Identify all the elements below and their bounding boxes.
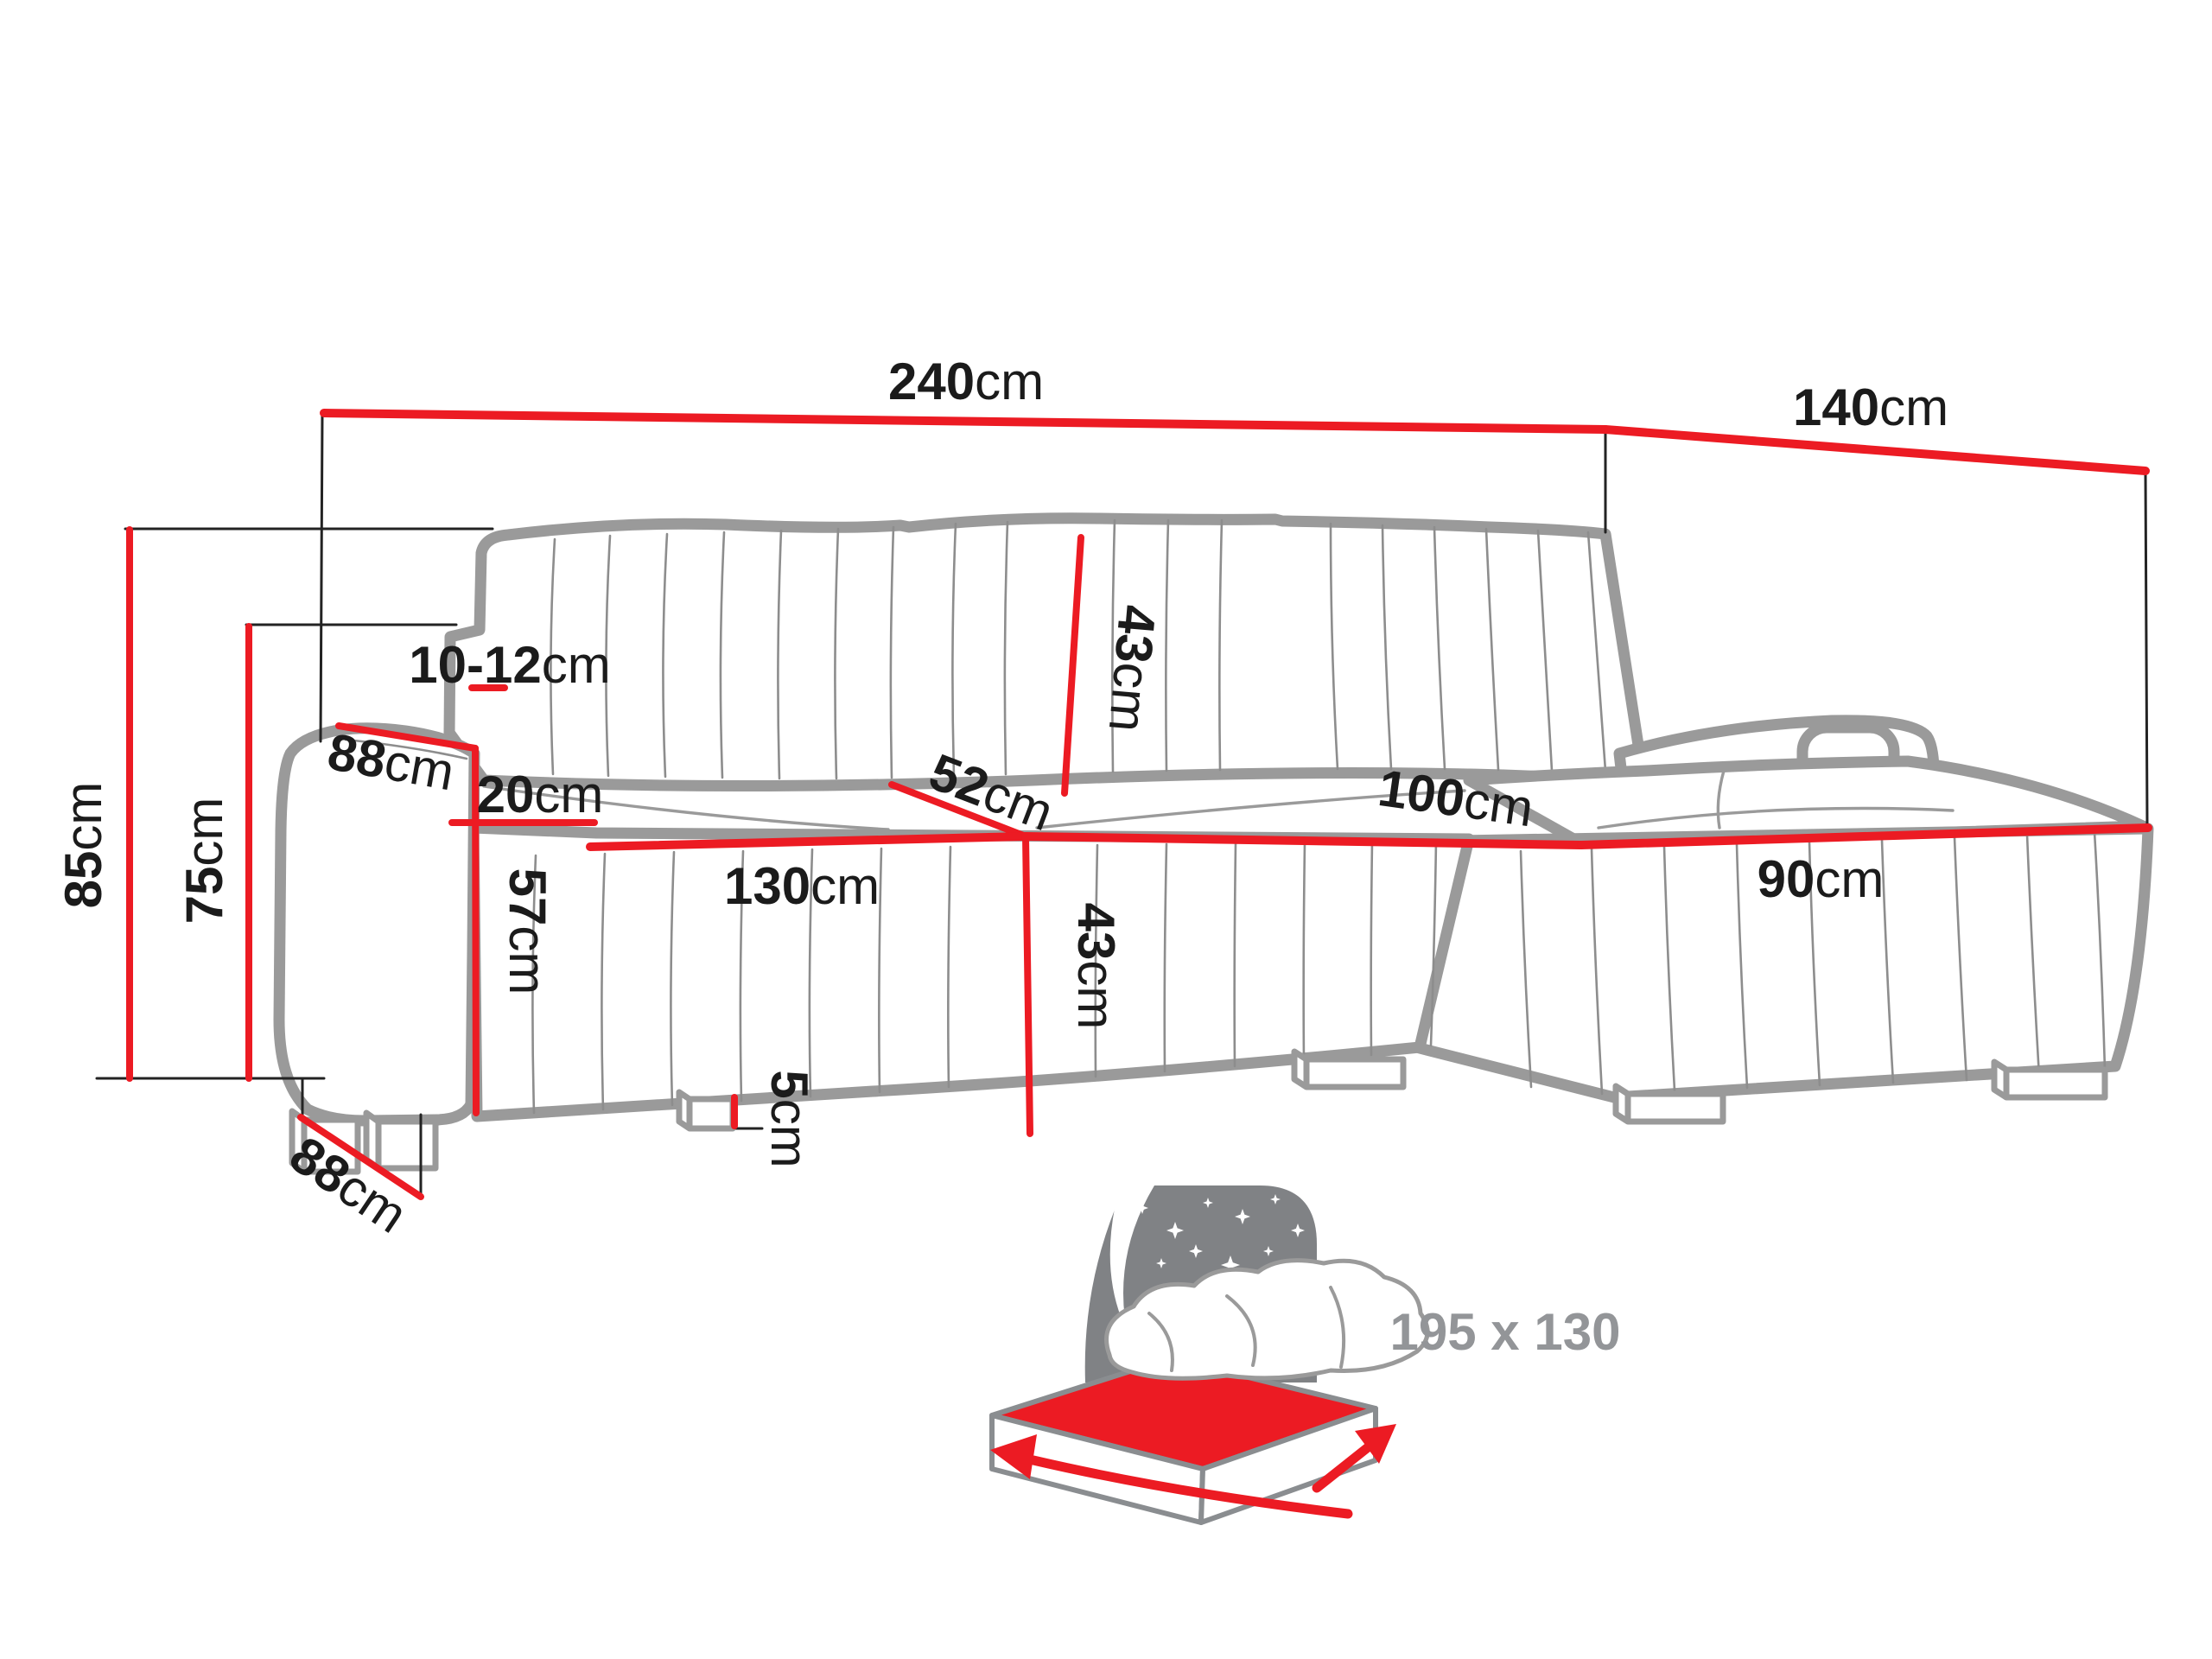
diagram-canvas: 240cm 140cm 85cm 75cm 10-12cm 88cm 20cm … — [0, 0, 2212, 1659]
sofa-dimension-diagram: 240cm 140cm 85cm 75cm 10-12cm 88cm 20cm … — [0, 0, 2212, 1659]
dim-label-return-depth: 140cm — [1793, 378, 1948, 436]
fold-out-mattress — [990, 1358, 1396, 1522]
dim-label-headrest-adjustment: 10-12cm — [409, 636, 610, 694]
dim-line-seat-height-43 — [1026, 836, 1030, 1134]
dim-label-seat-length: 130cm — [724, 857, 880, 915]
sleeping-area-size-label: 195 x 130 — [1390, 1303, 1621, 1361]
dim-line-overall-width-240 — [324, 413, 1605, 429]
sofa-illustration — [279, 518, 2148, 1172]
sofa-backrest — [449, 518, 1642, 786]
dim-label-chaise-width: 90cm — [1758, 850, 1885, 908]
dim-label-seat-height: 43cm — [1067, 903, 1125, 1030]
dim-label-armrest-width: 20cm — [477, 766, 604, 823]
dim-label-overall-height: 85cm — [54, 782, 112, 909]
dim-label-backrest-cushion: 43cm — [1098, 603, 1167, 734]
sleep-function-icon: 195 x 130 — [990, 1185, 1620, 1522]
dim-label-leg-height: 5cm — [760, 1070, 818, 1167]
dim-label-seat-front-height: 57cm — [499, 868, 556, 995]
dim-label-overall-width: 240cm — [888, 353, 1044, 410]
dim-label-backrest-height: 75cm — [175, 798, 233, 925]
